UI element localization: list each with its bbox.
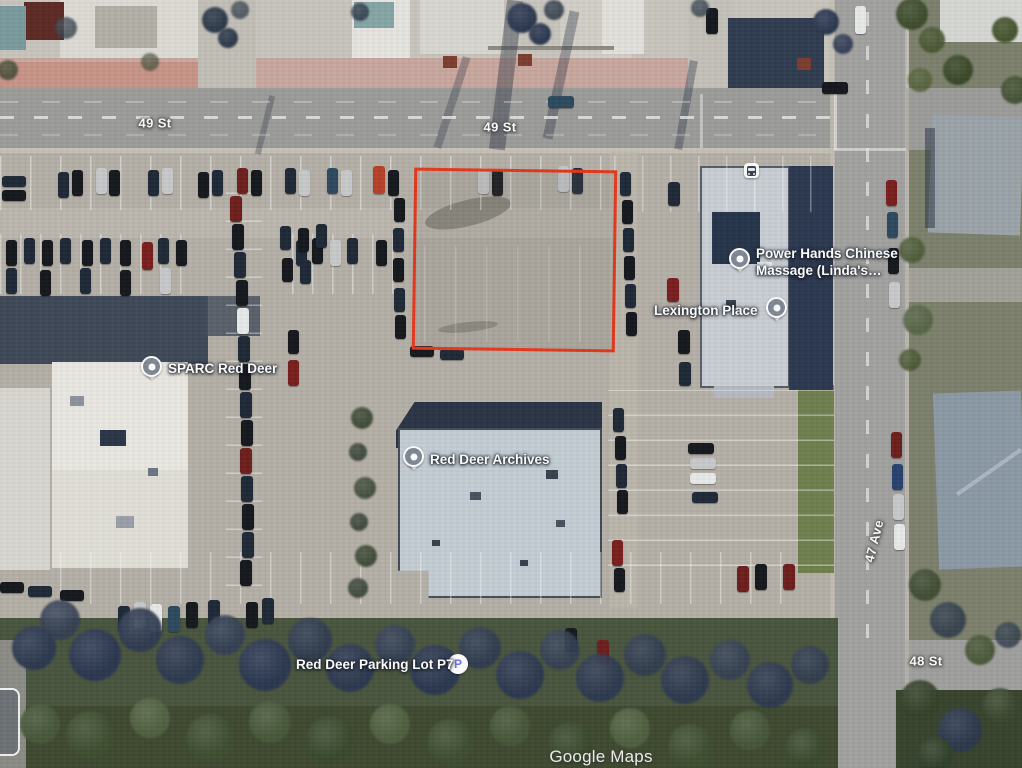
street-label-49-st-west: 49 St [138,116,171,131]
parking-letter: P [454,657,462,671]
poi-label-text: Lexington Place [654,302,758,319]
pin-disc [141,356,162,377]
pin-disc [729,248,750,269]
bus-glyph [747,166,756,176]
satellite-map[interactable]: 49 St49 St47 Ave48 StSPARC Red DeerPower… [0,0,1022,768]
poi-label-text: SPARC Red Deer [168,360,277,377]
poi-label-line: Red Deer Archives [430,451,550,468]
place-pin-icon [729,248,750,275]
pin-disc [403,446,424,467]
poi-label-line: Red Deer Parking Lot P7 [296,656,454,673]
google-maps-watermark: Google Maps [549,747,652,767]
pin-disc [766,297,787,318]
place-pin-icon [766,297,787,324]
poi-label-line: Massage (Linda's… [756,262,898,279]
street-label-47-ave: 47 Ave [861,518,886,564]
poi-label-text: Red Deer Parking Lot P7 [296,656,454,673]
street-label-49-st-center: 49 St [483,120,516,135]
poi-label-line: SPARC Red Deer [168,360,277,377]
place-pin-icon [403,446,424,473]
poi-label-text: Power Hands ChineseMassage (Linda's… [756,245,898,279]
street-label-48-st: 48 St [909,654,942,669]
map-labels: 49 St49 St47 Ave48 StSPARC Red DeerPower… [0,0,1022,768]
map-control-partial[interactable] [0,688,20,756]
place-pin-icon [141,356,162,383]
poi-label-line: Power Hands Chinese [756,245,898,262]
bus-stop-icon[interactable] [744,163,759,178]
poi-label-text: Red Deer Archives [430,451,550,468]
poi-label-line: Lexington Place [654,302,758,319]
